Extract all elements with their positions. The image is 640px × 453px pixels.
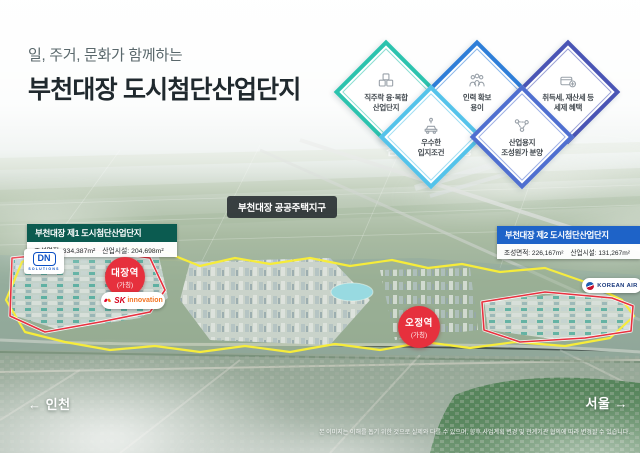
poster-canvas: 김포국제공항 일, 주거, 문화가 함께하는 부천대장 도시첨단산업단지 직주락… (0, 0, 640, 453)
sk-butterfly-icon (103, 296, 112, 305)
car-location-icon (421, 116, 441, 136)
left-arrow-icon: ← (28, 397, 42, 412)
complex2-area-stat: 조성면적: 226,167m² (504, 247, 563, 257)
direction-seoul: 서울 → (585, 393, 628, 412)
benefit-label: 우수한입지조건 (418, 138, 444, 158)
tax-savings-icon (558, 71, 578, 91)
benefit-label: 인력 확보용이 (463, 93, 491, 113)
benefit-label: 산업용지조성원가 분양 (501, 138, 542, 158)
urban-texture (0, 355, 640, 453)
korean-air-taegeuk-icon (586, 282, 594, 290)
korean-air-logo: KOREAN AIR (582, 278, 640, 293)
housing-district-label: 부천대장 공공주택지구 (227, 196, 337, 218)
station-badge-ojeong: 오정역 (가칭) (398, 306, 440, 348)
poster-title: 부천대장 도시첨단산업단지 (28, 70, 301, 106)
stacked-cubes-icon (376, 71, 396, 91)
direction-incheon: ← 인천 (28, 394, 71, 413)
complex2-title: 부천대장 제2 도시첨단산업단지 (497, 226, 640, 244)
complex2-industry-stat: 산업시설: 131,267m² (570, 247, 629, 257)
sk-innovation-logo: SK innovation (101, 292, 165, 309)
complex1-title: 부천대장 제1 도시첨단산업단지 (27, 224, 177, 242)
complex2-infobox: 부천대장 제2 도시첨단산업단지 조성면적: 226,167m² 산업시설: 1… (497, 226, 640, 259)
dn-solutions-logo: DN SOLUTIONS (24, 249, 64, 274)
complex1-industry-stat: 산업시설: 204,698m² (102, 245, 163, 255)
disclaimer-text: 본 이미지는 이해를 돕기 위한 것으로 실제와 다를 수 있으며, 향후 사업… (310, 427, 630, 436)
station-badge-daejang: 대장역 (가칭) (105, 257, 145, 297)
network-nodes-icon (512, 116, 532, 136)
people-group-icon (467, 71, 487, 91)
title-block: 일, 주거, 문화가 함께하는 부천대장 도시첨단산업단지 (28, 44, 301, 106)
right-arrow-icon: → (615, 396, 629, 411)
poster-subtitle: 일, 주거, 문화가 함께하는 (28, 44, 301, 65)
